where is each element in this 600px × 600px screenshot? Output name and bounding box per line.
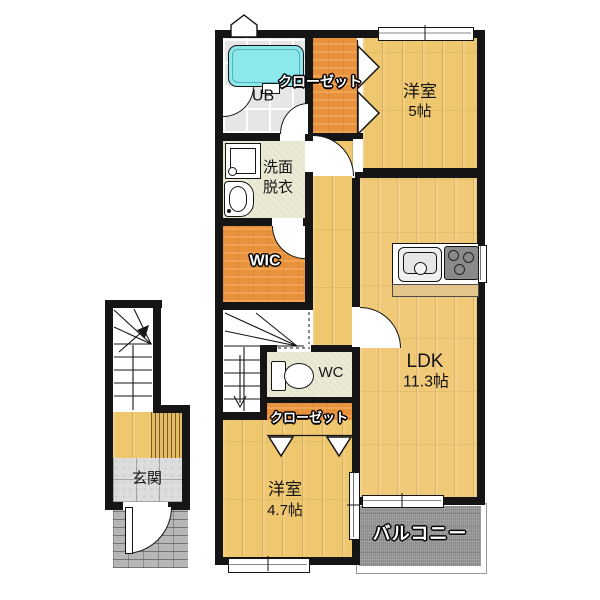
stairs-run-area	[223, 345, 260, 412]
lower-closet-label: クローゼット	[270, 411, 348, 425]
washbasin	[224, 181, 254, 217]
wall-stairs-bottom	[215, 412, 267, 420]
wall-washroom-wic-right	[303, 218, 313, 226]
bedroom5-top-window	[378, 27, 474, 41]
entry-step-edge	[151, 412, 182, 458]
wall-annex-left	[105, 300, 113, 510]
wall-bedroom5-ldk-divider	[355, 168, 485, 178]
ub-label: UB	[252, 89, 274, 106]
bedroom5-door-gap	[353, 139, 363, 172]
wall-washroom-right	[305, 172, 313, 310]
annex-stair-shaft	[113, 308, 153, 412]
genkan-label: 玄関	[132, 471, 162, 487]
wall-main-right-upper	[477, 30, 485, 245]
bedroom47-name: 洋室	[268, 481, 302, 499]
wall-hall-ldk-upper	[352, 178, 360, 307]
ldk-size: 11.3帖	[403, 375, 449, 392]
kitchen-sink	[398, 247, 442, 282]
stairs-winder-area	[223, 310, 305, 345]
wall-annex-right	[182, 405, 190, 510]
washroom-label-line1: 洗面	[263, 160, 293, 176]
wall-annex-bottom-left	[105, 502, 123, 510]
stairs-hall-opening	[305, 310, 313, 345]
washroom-label-line2: 脱衣	[263, 180, 293, 196]
wall-bedroom47-right-lower	[352, 537, 360, 565]
wc-label: WC	[319, 365, 344, 381]
wic-label: WIC	[249, 254, 280, 271]
ldk-name: LDK	[407, 352, 444, 372]
kitchen-stove	[444, 246, 479, 280]
ldk-door-gap	[352, 307, 360, 347]
wc-sliding-door	[277, 344, 311, 352]
wall-main-left	[215, 30, 223, 565]
wall-washroom-wic-left	[215, 218, 272, 226]
wall-below-wic	[215, 302, 313, 310]
toilet-bowl	[284, 363, 314, 389]
bedroom5-name: 洋室	[403, 83, 437, 101]
bedroom47-size: 4.7帖	[267, 503, 303, 519]
washing-machine-pan	[225, 143, 261, 179]
bedroom47-side-window	[349, 472, 360, 540]
wall-annex-shaft-right	[153, 300, 161, 412]
entry-door-leaf	[125, 507, 133, 554]
wall-hall-ldk-lower	[352, 347, 360, 473]
wall-wc-closet-divider	[260, 397, 358, 403]
ub-door-gap	[280, 133, 305, 141]
balcony-label: バルコニー	[373, 525, 468, 544]
wall-ldk-balcony-right	[442, 497, 485, 505]
balcony-sliding-window	[362, 495, 444, 508]
bedroom47-bottom-window	[228, 558, 310, 573]
washroom-door-gap	[305, 141, 313, 172]
bedroom5-size: 5帖	[408, 104, 431, 120]
floor-plan: UB クローゼット 洋室 5帖 洗面 脱衣 WIC LDK 11.3帖 WC ク…	[0, 0, 600, 600]
upper-closet-label: クローゼット	[278, 75, 362, 90]
wall-main-right-lower	[477, 281, 485, 505]
kitchen-counter-face	[392, 284, 479, 297]
